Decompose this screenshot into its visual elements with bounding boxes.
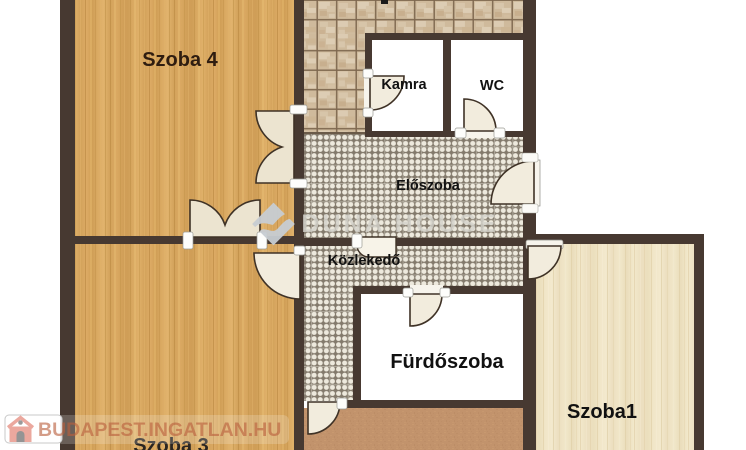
svg-text:Fürdőszoba: Fürdőszoba xyxy=(390,351,504,373)
svg-text:DUNA HOUSE: DUNA HOUSE xyxy=(301,210,498,238)
svg-text:BUDAPEST.INGATLAN.HU: BUDAPEST.INGATLAN.HU xyxy=(38,419,281,441)
svg-text:Szoba 4: Szoba 4 xyxy=(142,49,218,71)
svg-text:Kamra: Kamra xyxy=(381,77,427,93)
svg-text:Közlekedő: Közlekedő xyxy=(328,253,401,269)
svg-text:Szoba1: Szoba1 xyxy=(567,401,637,423)
svg-text:Előszoba: Előszoba xyxy=(396,178,461,194)
svg-text:WC: WC xyxy=(480,78,505,94)
